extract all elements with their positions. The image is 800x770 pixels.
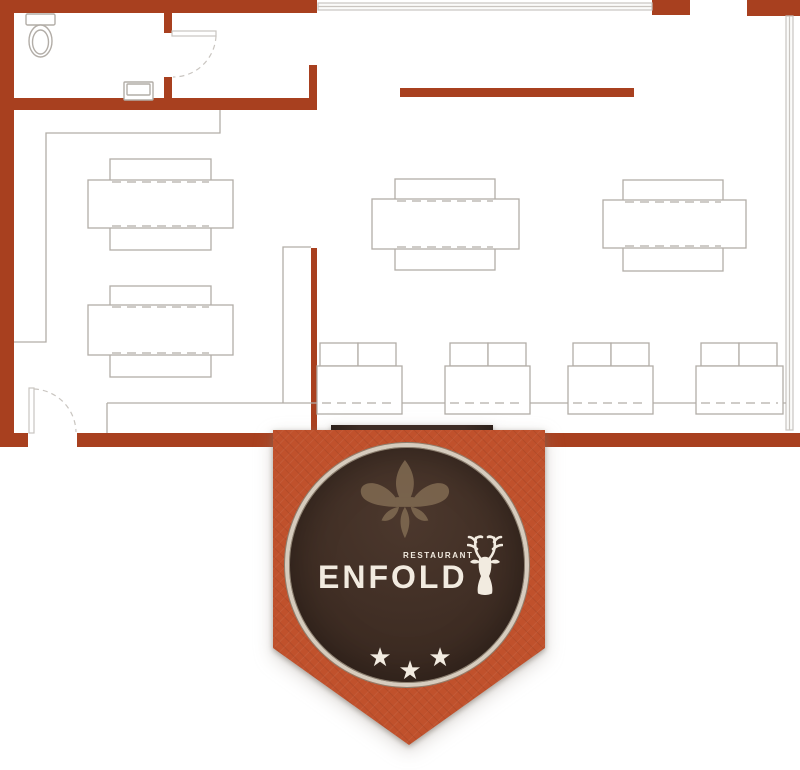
logo-circle: RESTAURANT ENFOLD ★★★ bbox=[285, 443, 529, 687]
star-icon: ★ bbox=[426, 643, 454, 671]
booth-chair bbox=[358, 343, 396, 366]
door-leaf bbox=[172, 31, 216, 36]
entry-door bbox=[29, 388, 76, 433]
booth-table bbox=[445, 366, 530, 414]
booth-chair bbox=[320, 343, 358, 366]
logo-name: ENFOLD bbox=[318, 560, 468, 595]
bench bbox=[110, 353, 211, 377]
restroom-partition-bottom bbox=[164, 77, 172, 98]
door-leaf bbox=[29, 388, 34, 433]
bench bbox=[110, 159, 211, 182]
left-wall bbox=[0, 0, 14, 447]
vestibule-stub-wall bbox=[309, 65, 317, 110]
door-swing-arc bbox=[34, 389, 76, 432]
star-icon: ★ bbox=[366, 643, 394, 671]
restaurant-banner: RESTAURANT ENFOLD ★★★ bbox=[273, 430, 545, 745]
furniture-layer bbox=[88, 159, 783, 414]
restroom-door bbox=[172, 31, 216, 77]
bench bbox=[395, 247, 495, 270]
deer-icon bbox=[467, 535, 503, 595]
table bbox=[88, 305, 233, 355]
table bbox=[603, 200, 746, 248]
booth-table bbox=[317, 366, 402, 414]
booth-chair bbox=[701, 343, 739, 366]
kitchen-counter bbox=[400, 88, 634, 97]
top-wall-mid-right bbox=[652, 0, 690, 15]
fleur-de-lis-icon bbox=[353, 460, 457, 542]
sink-icon bbox=[124, 82, 153, 100]
booth-chair bbox=[488, 343, 526, 366]
bottom-wall-left bbox=[0, 433, 28, 447]
table bbox=[88, 180, 233, 228]
booth-chair bbox=[573, 343, 611, 366]
top-wall bbox=[0, 0, 317, 13]
booth-table bbox=[696, 366, 783, 414]
booth-table bbox=[568, 366, 653, 414]
booth-chair bbox=[450, 343, 488, 366]
bench bbox=[623, 247, 723, 271]
booth-chair bbox=[739, 343, 777, 366]
restroom-partition-top bbox=[164, 13, 172, 33]
table bbox=[372, 199, 519, 249]
floor-plan bbox=[0, 0, 800, 458]
door-swing-arc bbox=[173, 36, 216, 77]
top-wall-right bbox=[747, 0, 800, 16]
booth-chair bbox=[611, 343, 649, 366]
bench bbox=[110, 227, 211, 250]
star-icon: ★ bbox=[396, 656, 424, 684]
toilet-icon bbox=[26, 14, 55, 57]
restroom-bottom-wall bbox=[13, 98, 317, 110]
